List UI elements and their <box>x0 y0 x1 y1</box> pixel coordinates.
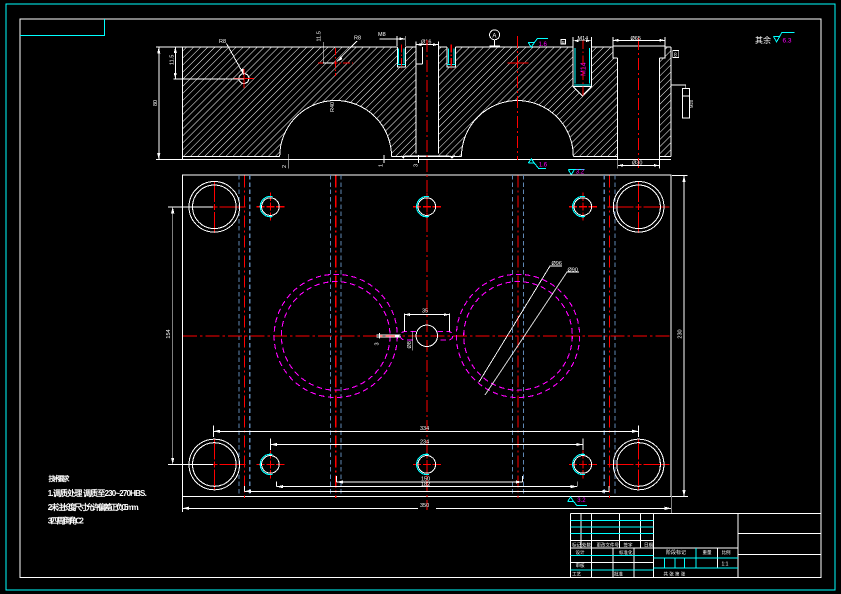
svg-text:1.调质处理 调质至230~270HBS.: 1.调质处理 调质至230~270HBS. <box>48 488 147 498</box>
svg-text:重量: 重量 <box>703 549 712 556</box>
svg-text:350: 350 <box>420 503 429 509</box>
svg-text:Ø96: Ø96 <box>552 261 562 267</box>
svg-text:80: 80 <box>153 100 159 106</box>
svg-text:设计: 设计 <box>576 549 585 556</box>
svg-text:Ø90: Ø90 <box>568 268 578 274</box>
svg-text:M14: M14 <box>581 62 588 76</box>
svg-text:比例: 比例 <box>722 549 731 556</box>
svg-text:230: 230 <box>677 329 683 338</box>
svg-text:签字: 签字 <box>624 542 633 548</box>
svg-text:R40: R40 <box>330 102 336 112</box>
svg-text:1:1: 1:1 <box>722 562 729 568</box>
svg-text:2: 2 <box>282 165 288 168</box>
svg-text:其余: 其余 <box>755 35 771 45</box>
svg-text:234: 234 <box>420 439 429 445</box>
svg-text:共 张 第 张: 共 张 第 张 <box>664 571 686 578</box>
svg-text:334: 334 <box>420 426 429 432</box>
svg-text:3: 3 <box>374 342 380 345</box>
svg-text:阶段标记: 阶段标记 <box>666 549 686 556</box>
svg-text:处数: 处数 <box>582 542 591 549</box>
svg-text:2.未注长度尺寸允许偏差正负0.5mm.: 2.未注长度尺寸允许偏差正负0.5mm. <box>48 502 139 512</box>
svg-text:A: A <box>492 33 496 39</box>
svg-text:技术要求: 技术要求 <box>49 474 71 483</box>
svg-text:154: 154 <box>166 329 172 338</box>
svg-text:工艺: 工艺 <box>572 572 581 577</box>
svg-text:3.2: 3.2 <box>577 498 586 504</box>
svg-text:182: 182 <box>421 482 430 488</box>
svg-text:1.6: 1.6 <box>539 42 548 48</box>
svg-text:Ø16: Ø16 <box>421 40 431 46</box>
svg-text:8: 8 <box>674 53 677 59</box>
svg-text:M20: M20 <box>689 99 694 108</box>
svg-text:标记: 标记 <box>572 542 581 549</box>
svg-text:11.5: 11.5 <box>317 31 323 41</box>
svg-text:35: 35 <box>422 309 428 315</box>
svg-text:B: B <box>562 39 565 44</box>
svg-text:3: 3 <box>414 164 420 167</box>
svg-text:Ø30: Ø30 <box>632 161 642 167</box>
svg-text:3.四周倒角C2: 3.四周倒角C2 <box>48 516 85 526</box>
svg-text:更改文件号: 更改文件号 <box>597 542 620 549</box>
svg-text:Ø65: Ø65 <box>631 36 641 42</box>
svg-text:R8: R8 <box>219 39 226 45</box>
svg-text:6.3: 6.3 <box>783 38 792 45</box>
svg-text:M8: M8 <box>378 32 386 38</box>
svg-text:1: 1 <box>379 164 385 167</box>
svg-text:1.6: 1.6 <box>539 163 548 169</box>
svg-text:Ø8: Ø8 <box>407 341 413 348</box>
svg-text:批准: 批准 <box>614 571 623 578</box>
svg-text:R8: R8 <box>354 36 361 42</box>
svg-text:11.5: 11.5 <box>170 55 176 65</box>
svg-text:审核: 审核 <box>576 562 585 569</box>
svg-text:标准化: 标准化 <box>619 549 633 556</box>
